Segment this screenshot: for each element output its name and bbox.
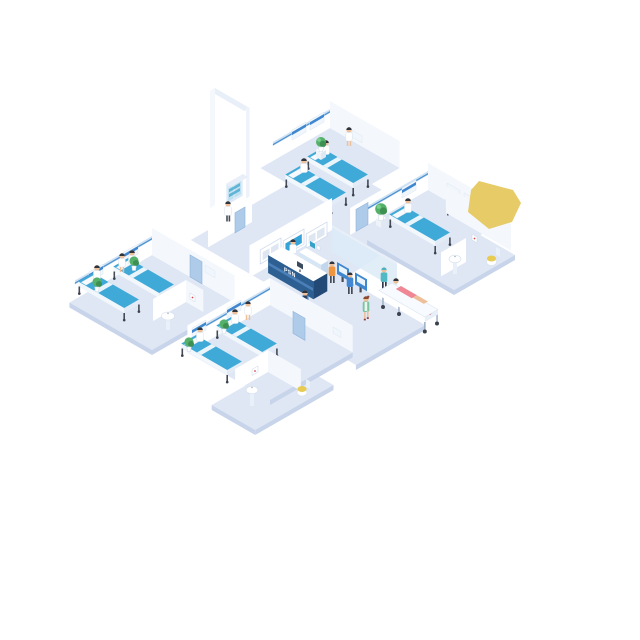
patient — [197, 327, 204, 341]
patient — [94, 265, 101, 279]
patient — [405, 198, 412, 212]
patient — [301, 158, 308, 172]
stretcher-nurse — [381, 267, 388, 289]
hospital-isometric-illustration: PSN — [0, 0, 640, 640]
receptionist — [290, 239, 297, 253]
patient — [232, 309, 239, 323]
